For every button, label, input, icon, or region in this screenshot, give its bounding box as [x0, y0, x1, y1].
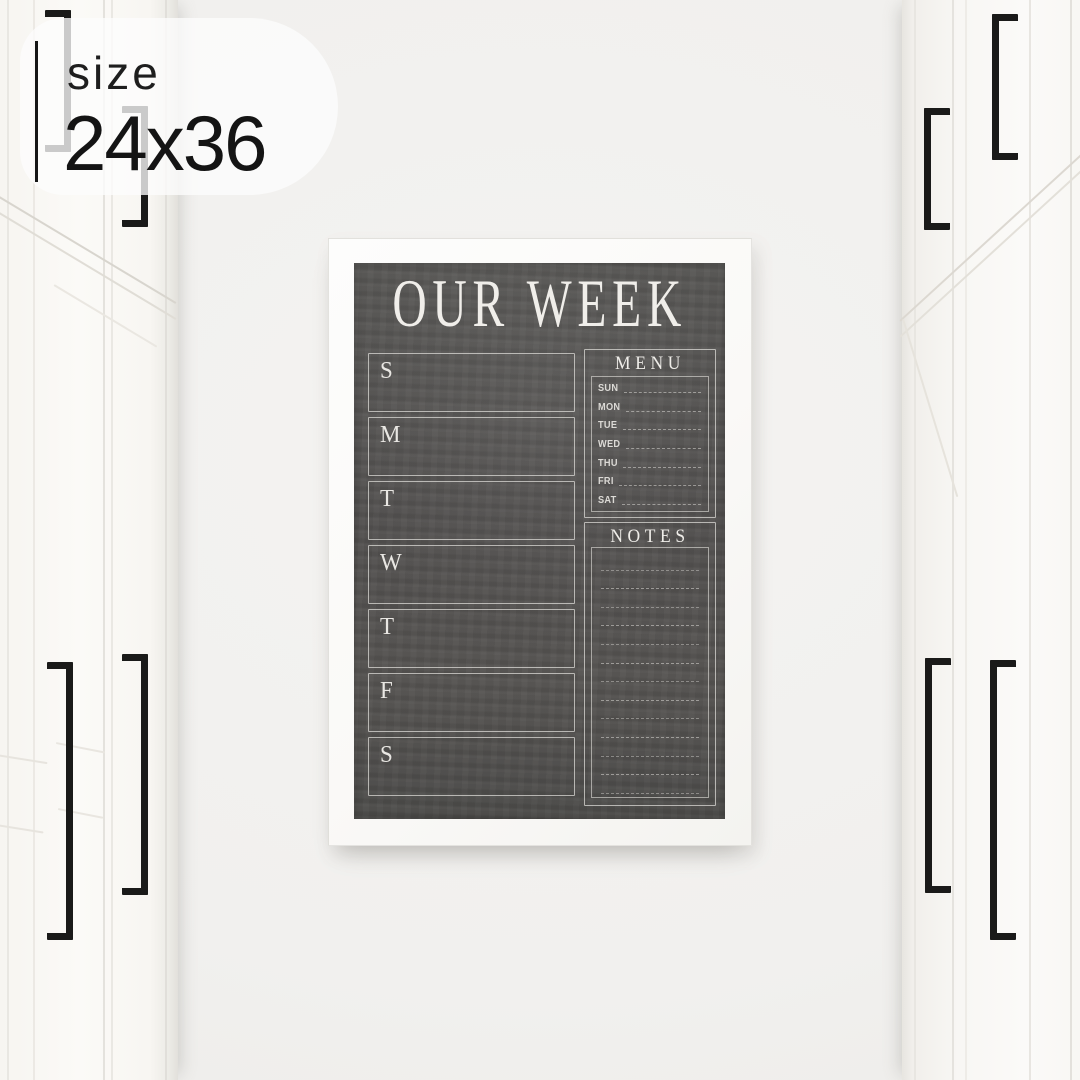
menu-day-row: TUE [592, 421, 708, 431]
notes-lines [591, 547, 709, 798]
note-writing-line [601, 552, 699, 571]
note-writing-line [601, 589, 699, 608]
menu-day-label: TUE [598, 421, 617, 431]
day-letter: T [380, 613, 394, 640]
menu-writing-line [623, 429, 701, 430]
note-writing-line [601, 664, 699, 683]
day-letter: S [380, 357, 393, 384]
cabinet-pull-handle [122, 654, 148, 895]
menu-day-row: SAT [592, 496, 708, 506]
notes-section: NOTES [584, 522, 716, 806]
menu-writing-line [622, 504, 701, 505]
note-writing-line [601, 608, 699, 627]
note-writing-line [601, 571, 699, 590]
menu-title: MENU [590, 354, 710, 373]
day-box-tuesday: T [368, 481, 575, 540]
badge-size-value: 24x36 [63, 104, 266, 182]
menu-day-row: THU [592, 459, 708, 469]
size-badge: size 24x36 [20, 18, 338, 195]
day-boxes-column: S M T W T F S [368, 353, 575, 801]
menu-rows: SUN MON TUE WED THU FRI SAT [591, 376, 709, 512]
menu-day-label: SAT [598, 496, 617, 506]
cabinet-pull-handle [924, 108, 950, 230]
menu-day-row: FRI [592, 477, 708, 487]
menu-day-row: SUN [592, 384, 708, 394]
menu-writing-line [623, 467, 701, 468]
note-writing-line [601, 645, 699, 664]
notes-title: NOTES [590, 527, 710, 546]
note-writing-line [601, 738, 699, 757]
note-writing-line [601, 626, 699, 645]
day-box-wednesday: W [368, 545, 575, 604]
note-writing-line [601, 757, 699, 776]
menu-writing-line [619, 485, 701, 486]
badge-divider-line [35, 41, 38, 182]
poster-title-row: OUR WEEK [354, 275, 725, 333]
day-letter: T [380, 485, 394, 512]
menu-day-label: FRI [598, 477, 614, 487]
chalkboard-surface: OUR WEEK S M T W T F S MENU SUN MON TUE … [354, 263, 725, 819]
cabinet-stile-line [7, 0, 9, 1080]
cabinet-stile-line [1029, 0, 1031, 1080]
menu-day-row: MON [592, 403, 708, 413]
poster-title: OUR WEEK [392, 270, 687, 337]
menu-writing-line [624, 392, 701, 393]
note-writing-line [601, 701, 699, 720]
cabinet-edge-line [902, 319, 958, 497]
day-box-saturday: S [368, 737, 575, 796]
day-letter: W [380, 549, 402, 576]
menu-day-label: WED [598, 440, 620, 450]
day-letter: S [380, 741, 393, 768]
menu-day-row: WED [592, 440, 708, 450]
menu-writing-line [626, 448, 701, 449]
menu-writing-line [626, 411, 701, 412]
cabinet-stile-line [952, 0, 954, 1080]
menu-day-label: THU [598, 459, 618, 469]
cabinet-stile-line [965, 0, 967, 1080]
day-box-sunday: S [368, 353, 575, 412]
cabinet-rail-line [53, 284, 157, 348]
cabinet-pull-handle [990, 660, 1016, 940]
badge-size-label: size [67, 50, 161, 96]
menu-day-label: MON [598, 403, 620, 413]
day-box-friday: F [368, 673, 575, 732]
day-box-monday: M [368, 417, 575, 476]
note-writing-line [601, 775, 699, 794]
weekly-planner-poster: OUR WEEK S M T W T F S MENU SUN MON TUE … [328, 238, 752, 846]
menu-day-label: SUN [598, 384, 618, 394]
day-box-thursday: T [368, 609, 575, 668]
menu-section: MENU SUN MON TUE WED THU FRI SAT [584, 349, 716, 518]
note-writing-line [601, 682, 699, 701]
day-letter: F [380, 677, 393, 704]
cabinet-pull-handle [925, 658, 951, 893]
cabinet-stile-line [914, 0, 916, 1080]
cabinet-pull-handle [47, 662, 73, 940]
day-letter: M [380, 421, 400, 448]
cabinet-pull-handle [992, 14, 1018, 160]
note-writing-line [601, 719, 699, 738]
cabinet-edge-line [0, 194, 177, 304]
